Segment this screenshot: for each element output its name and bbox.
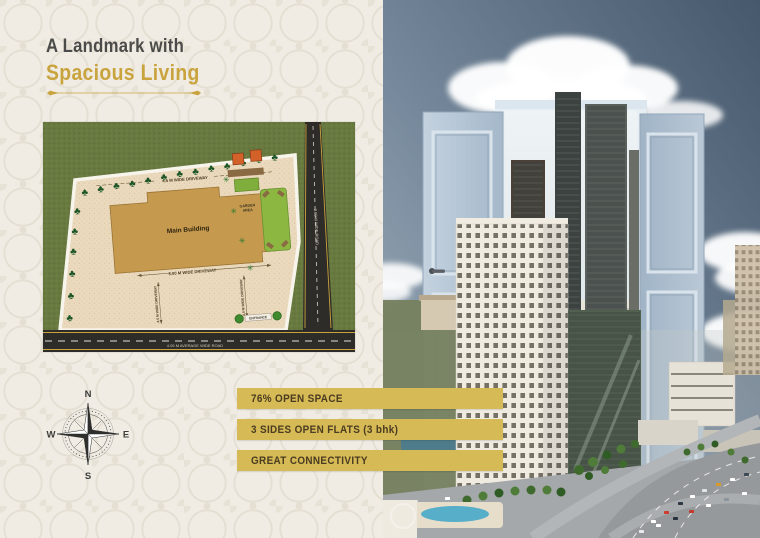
bottom-road: 4.05 M AVERAGE WIDE ROAD xyxy=(43,330,355,352)
svg-text:♣: ♣ xyxy=(81,187,89,199)
compass-w: W xyxy=(47,430,56,441)
compass-n: N xyxy=(85,389,92,400)
compass-e: E xyxy=(123,430,129,441)
site-plan: Main Building 4.5 M WIDE DRIVEWAY 3.00 M… xyxy=(43,122,355,352)
svg-text:♣: ♣ xyxy=(208,163,216,175)
feature-banner-label: 3 SIDES OPEN FLATS (3 bhk) xyxy=(251,424,398,436)
svg-text:♣: ♣ xyxy=(192,167,200,179)
villa xyxy=(421,300,461,330)
heading-line2: Spacious Living xyxy=(46,60,200,86)
divider-right-ornament-icon xyxy=(189,91,201,96)
feature-banner-label: GREAT CONNECTIVITY xyxy=(251,455,368,467)
compass-cardinal-points xyxy=(57,403,119,465)
feature-banner-open-space: 76% OPEN SPACE xyxy=(237,388,503,409)
svg-text:♣: ♣ xyxy=(144,175,152,187)
svg-text:♣: ♣ xyxy=(70,246,78,258)
garden-area-label-2: AREA xyxy=(242,208,253,213)
svg-text:♣: ♣ xyxy=(68,269,76,281)
svg-text:♣: ♣ xyxy=(71,226,79,238)
feature-banners: 76% OPEN SPACE 3 SIDES OPEN FLATS (3 bhk… xyxy=(237,388,503,481)
svg-text:✳: ✳ xyxy=(230,207,238,217)
feature-banner-open-flats: 3 SIDES OPEN FLATS (3 bhk) xyxy=(237,419,503,440)
heading-line1: A Landmark with xyxy=(46,36,200,58)
low-building-1 xyxy=(638,420,698,445)
svg-text:♣: ♣ xyxy=(66,313,74,325)
compass-s: S xyxy=(85,471,91,482)
brochure-page: A Landmark with Spacious Living xyxy=(0,0,760,538)
svg-text:♣: ♣ xyxy=(113,181,121,193)
svg-text:♣: ♣ xyxy=(160,172,168,184)
bottom-road-label: 4.05 M AVERAGE WIDE ROAD xyxy=(167,343,223,348)
svg-text:♣: ♣ xyxy=(176,169,184,181)
svg-text:♣: ♣ xyxy=(74,206,82,218)
heading-divider xyxy=(45,88,203,98)
svg-text:♣: ♣ xyxy=(129,179,137,191)
svg-text:♣: ♣ xyxy=(67,291,75,303)
svg-text:✳: ✳ xyxy=(247,264,255,274)
svg-text:✳: ✳ xyxy=(223,175,231,185)
right-edge-tower xyxy=(735,245,760,375)
svg-text:♣: ♣ xyxy=(271,152,279,164)
feature-banner-connectivity: GREAT CONNECTIVITY xyxy=(237,450,503,471)
feature-banner-label: 76% OPEN SPACE xyxy=(251,393,343,405)
divider-left-ornament-icon xyxy=(47,91,59,96)
svg-text:✳: ✳ xyxy=(238,236,246,246)
page-title: A Landmark with Spacious Living xyxy=(46,36,221,86)
compass-rose-icon: N E S W xyxy=(46,386,132,482)
svg-text:♣: ♣ xyxy=(97,184,105,196)
